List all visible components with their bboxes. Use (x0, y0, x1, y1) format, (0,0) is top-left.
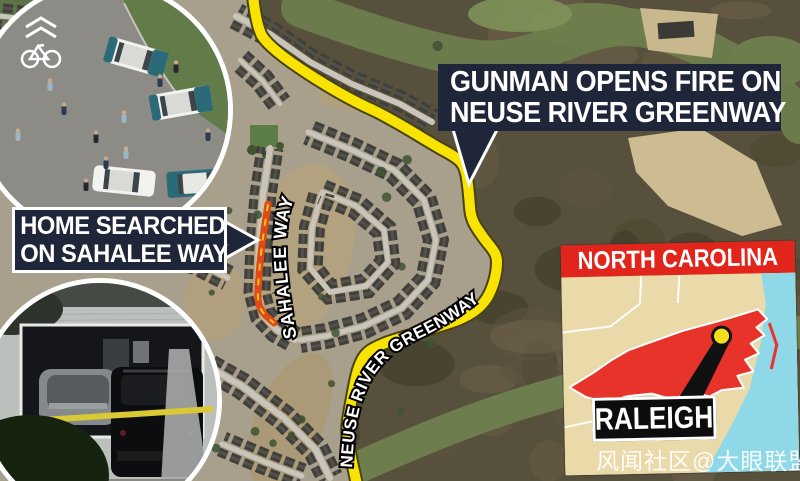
callout-line: ON SAHALEE WAY (20, 240, 219, 268)
news-map-graphic: SAHALEE WAY NEUSE RIVER GREENWAY (0, 0, 800, 481)
callout-line: GUNMAN OPENS FIRE ON (450, 67, 769, 98)
nc-inset-title: NORTH CAROLINA (577, 242, 778, 275)
raleigh-pin (712, 327, 730, 345)
raleigh-label-text: RALEIGH (595, 399, 714, 437)
raleigh-label: RALEIGH (592, 395, 717, 442)
home-searched-callout: HOME SEARCHED ON SAHALEE WAY (12, 207, 227, 273)
gunman-callout: GUNMAN OPENS FIRE ON NEUSE RIVER GREENWA… (438, 64, 781, 131)
nc-locator-inset: NORTH CAROLINA RALEIGH (561, 241, 800, 476)
nc-inset-header: NORTH CAROLINA (561, 241, 796, 278)
callout-line: NEUSE RIVER GREENWAY (450, 98, 769, 129)
shelving (103, 339, 129, 371)
watermark: 风闻社区@大眼联盟 (596, 442, 800, 476)
building-roof (657, 21, 694, 39)
callout-line: HOME SEARCHED (20, 212, 219, 240)
shelving (133, 341, 149, 363)
